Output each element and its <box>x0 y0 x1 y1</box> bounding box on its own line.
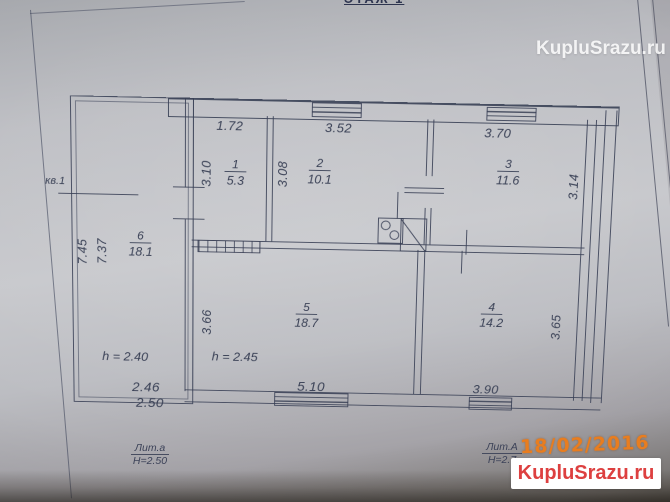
dim-room5-bottom: 5.10 <box>287 378 336 394</box>
room-3-label: 3 11.6 <box>482 155 535 188</box>
stove-burner-1 <box>381 220 391 230</box>
room-2-number: 2 <box>308 157 331 171</box>
photo-background: ЭТАЖ 1 <box>0 0 670 502</box>
sheet-frame-line-left <box>30 10 72 498</box>
liter-annex-name: Лит.а <box>131 442 169 455</box>
window-symbol-bottom-room4 <box>468 397 512 411</box>
apartment-label: кв.1 <box>45 175 65 187</box>
house-bottom-wall <box>185 389 601 410</box>
room-1-number: 1 <box>224 158 247 172</box>
dim-room5-left: 3.66 <box>199 302 213 342</box>
room-4-label: 4 14.2 <box>466 298 518 330</box>
watermark-box: KupluSrazu.ru <box>511 458 661 489</box>
date-stamp: 18/02/2016 <box>520 432 650 459</box>
sheet-frame-line-top <box>30 1 245 14</box>
wall-room1-room2 <box>265 116 273 241</box>
dim-room2-left: 3.08 <box>275 154 289 195</box>
door-tick-room3-room4-lower <box>461 251 463 274</box>
dim-annex-left-inner: 7.37 <box>94 231 108 271</box>
dim-annex-bottom-1: 2.46 <box>122 379 170 395</box>
room-2-label: 2 10.1 <box>294 154 346 187</box>
room-4-area: 14.2 <box>466 315 517 330</box>
room-5-area: 18.7 <box>281 315 332 330</box>
room-3-number: 3 <box>497 158 520 172</box>
dim-room4-right: 3.65 <box>547 307 562 346</box>
floorplan: кв.1 1 5.3 2 10.1 3 11.6 4 14.2 5 18.7 6… <box>70 95 626 412</box>
dim-room2-top: 3.52 <box>313 120 363 136</box>
room-4-number: 4 <box>480 301 503 315</box>
window-symbol-bottom-room5 <box>274 392 348 407</box>
room-5-label: 5 18.7 <box>281 298 332 330</box>
wall-room5-room4 <box>413 250 425 394</box>
watermark-text: KupluSrazu.ru <box>518 462 655 484</box>
dim-room1-top: 1.72 <box>205 118 255 134</box>
partition-stove <box>397 192 399 219</box>
dim-room3-right: 3.14 <box>565 166 581 207</box>
watermark-top: KupluSrazu.ru <box>536 38 666 60</box>
wall-room2-room3-upper <box>426 119 435 176</box>
room-1-area: 5.3 <box>210 173 262 189</box>
dim-annex-bottom-2: 2.50 <box>126 395 174 411</box>
room-5-number: 5 <box>295 301 317 315</box>
dim-annex-left-outer: 7.45 <box>75 231 89 271</box>
window-symbol-top-room3 <box>486 107 536 122</box>
room-6-label: 6 18.1 <box>115 227 166 260</box>
partition-hatched <box>198 240 261 254</box>
room-6-area: 18.1 <box>115 244 166 259</box>
liter-main-name: Лит.А <box>482 441 522 454</box>
wall-room6-room1-upper <box>185 98 194 188</box>
room-1-label: 1 5.3 <box>210 155 262 188</box>
liter-annex-height: Н=2.50 <box>118 455 182 467</box>
dim-room1-left: 3.10 <box>199 153 213 194</box>
height-label-room6: h = 2.40 <box>102 349 148 364</box>
room-3-area: 11.6 <box>482 172 534 188</box>
dim-room3-top: 3.70 <box>473 125 523 141</box>
height-label-room5: h = 2.45 <box>212 349 258 364</box>
room-6-number: 6 <box>129 230 151 244</box>
stove-burner-2 <box>389 230 399 240</box>
room-2-area: 10.1 <box>294 171 346 187</box>
door-dash-room2-room3 <box>404 187 444 194</box>
floor-caption: ЭТАЖ 1 <box>344 0 404 6</box>
window-symbol-top-room2 <box>312 102 362 118</box>
dim-room4-bottom: 3.90 <box>461 382 510 397</box>
liter-annex-label: Лит.а Н=2.50 <box>118 442 182 467</box>
